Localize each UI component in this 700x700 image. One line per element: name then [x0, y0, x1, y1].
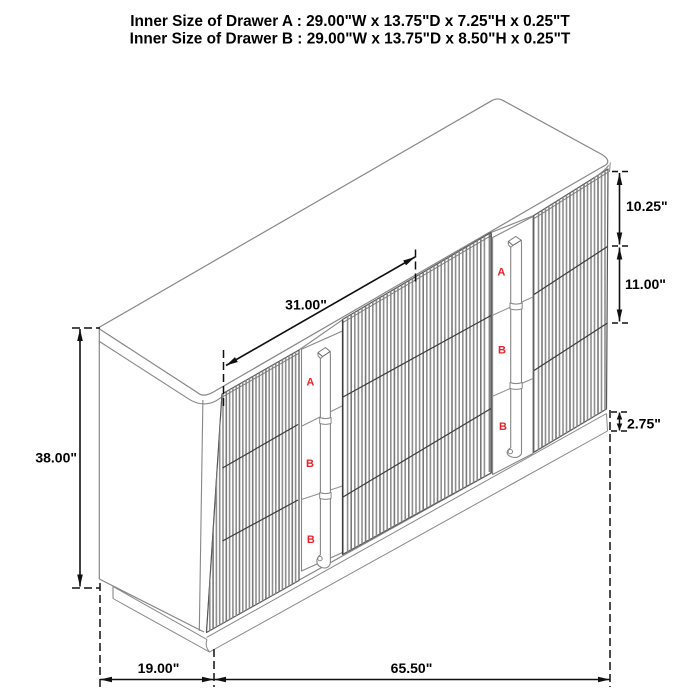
svg-text:A: A — [497, 267, 505, 279]
svg-text:38.00": 38.00" — [35, 450, 77, 466]
svg-text:10.25": 10.25" — [626, 198, 668, 214]
svg-text:B: B — [499, 421, 507, 433]
svg-text:B: B — [306, 458, 314, 470]
svg-text:Inner Size of Drawer B : 29.00: Inner Size of Drawer B : 29.00"W x 13.75… — [130, 30, 571, 47]
svg-text:B: B — [307, 534, 315, 546]
svg-text:19.00": 19.00" — [138, 660, 180, 676]
svg-text:11.00": 11.00" — [625, 276, 666, 292]
svg-text:B: B — [498, 345, 506, 357]
svg-text:2.75": 2.75" — [627, 416, 661, 432]
svg-text:31.00": 31.00" — [285, 297, 327, 313]
svg-text:A: A — [306, 377, 314, 389]
svg-text:65.50": 65.50" — [391, 660, 433, 676]
svg-text:Inner Size of Drawer A : 29.00: Inner Size of Drawer A : 29.00"W x 13.75… — [130, 13, 570, 30]
